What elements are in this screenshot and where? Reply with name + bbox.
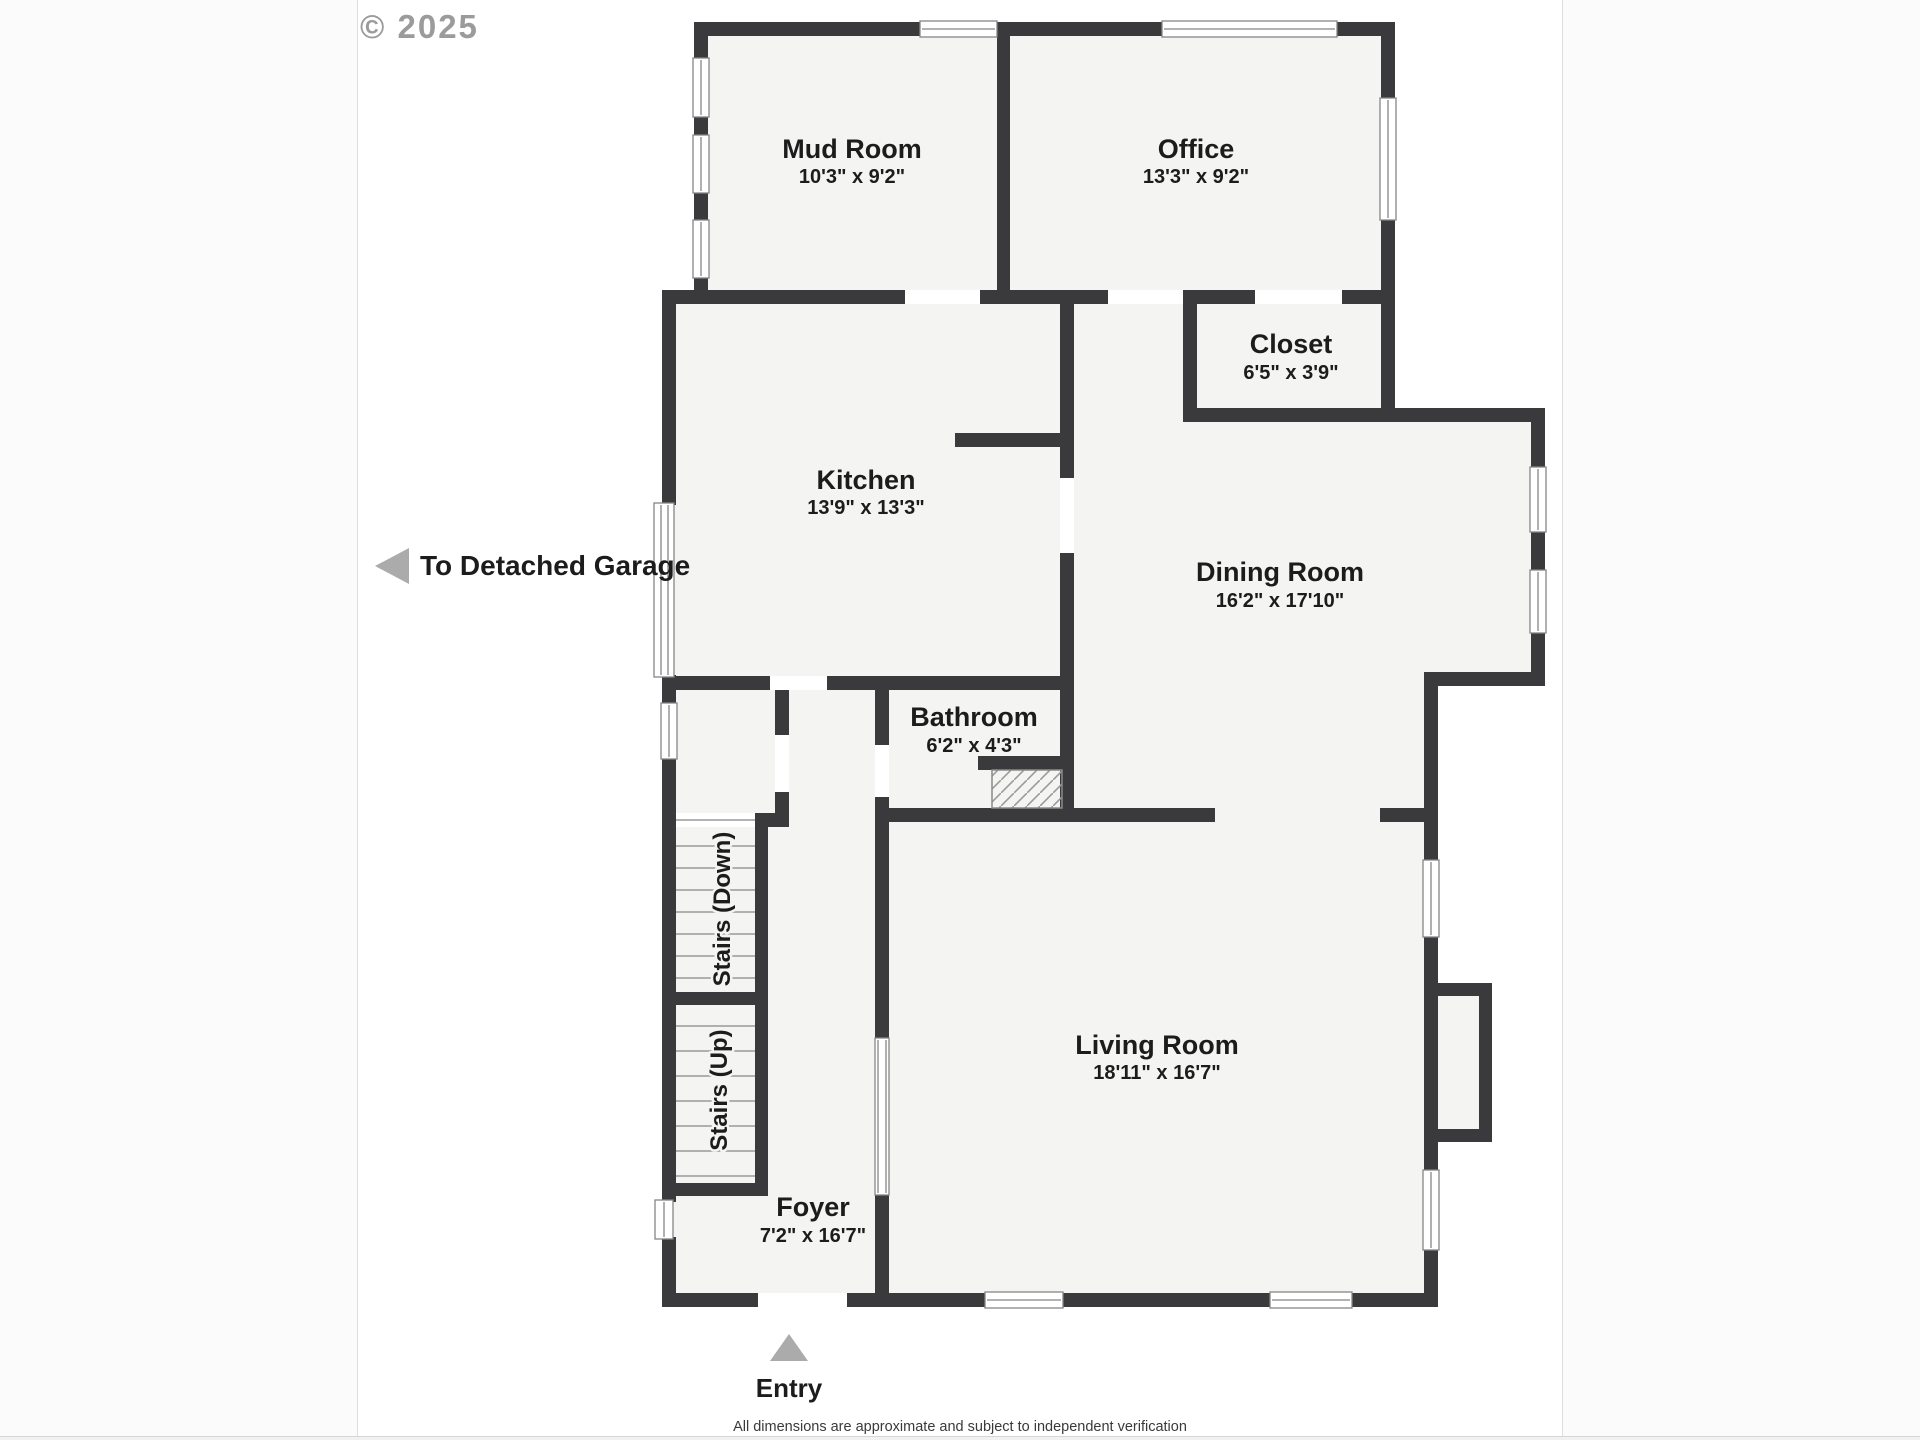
room-label-closet: Closet (1250, 329, 1333, 359)
room-label-stairs-down: Stairs (Down) (709, 832, 736, 987)
room-label-kitchen: Kitchen (816, 465, 915, 495)
room-dims-living-room: 18'11" x 16'7" (1093, 1062, 1220, 1084)
garage-direction-arrow-icon (375, 548, 409, 584)
floor-areas (662, 22, 1545, 1307)
chimney-hatch (992, 770, 1062, 808)
room-label-office: Office (1158, 134, 1235, 164)
room-label-stairs-up: Stairs (Up) (706, 1029, 733, 1150)
room-label-dining-room: Dining Room (1196, 557, 1364, 587)
room-label-mud-room: Mud Room (782, 134, 921, 164)
room-label-living-room: Living Room (1075, 1030, 1239, 1060)
entry-arrow-icon (770, 1334, 808, 1361)
entry-label: Entry (756, 1373, 823, 1403)
room-dims-dining-room: 16'2" x 17'10" (1216, 590, 1345, 612)
room-label-bathroom: Bathroom (910, 702, 1038, 732)
floorplan-canvas: Mud Room 10'3" x 9'2" Office 13'3" x 9'2… (0, 0, 1920, 1440)
room-dims-mud-room: 10'3" x 9'2" (799, 166, 905, 188)
copyright-watermark: © 2025 (360, 8, 479, 45)
disclaimer-text: All dimensions are approximate and subje… (733, 1419, 1187, 1435)
room-dims-kitchen: 13'9" x 13'3" (807, 497, 924, 519)
floor-main-block (662, 290, 1545, 1307)
room-label-foyer: Foyer (776, 1192, 850, 1222)
room-dims-closet: 6'5" x 3'9" (1243, 362, 1338, 384)
room-dims-foyer: 7'2" x 16'7" (760, 1225, 866, 1247)
garage-label: To Detached Garage (420, 550, 690, 581)
room-dims-office: 13'3" x 9'2" (1143, 166, 1249, 188)
room-dims-bathroom: 6'2" x 4'3" (926, 735, 1021, 757)
